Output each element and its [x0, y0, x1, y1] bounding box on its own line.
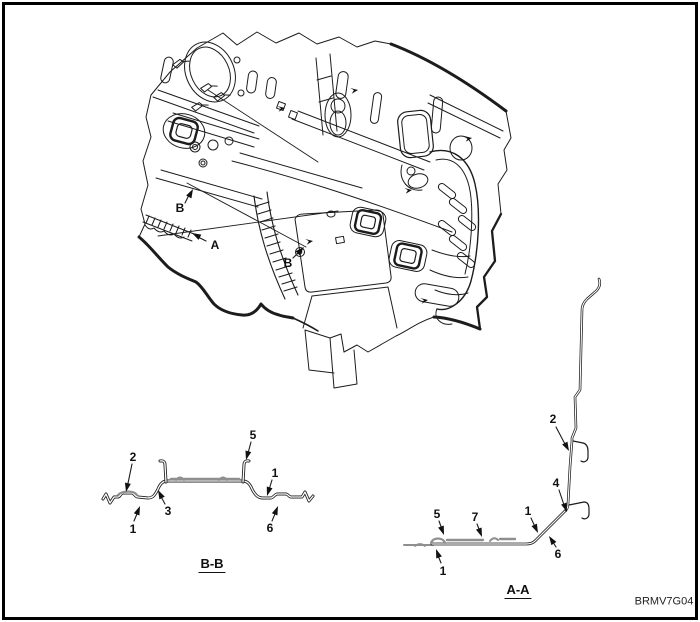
- section-line-bb: [187, 183, 306, 247]
- body-topright-edge: [391, 44, 506, 111]
- bb-callout: 5: [250, 429, 257, 441]
- body-right-edge-thick: [477, 214, 501, 329]
- slot: [265, 77, 277, 99]
- body-bottomright-edge: [434, 317, 480, 329]
- aa-callout: 7: [472, 511, 479, 523]
- peanut-hole: [325, 93, 351, 137]
- body-top-edge: [151, 32, 391, 95]
- aa-hook-upper: [573, 441, 588, 462]
- section-line-aa: [158, 211, 338, 236]
- aa-sealer: [431, 538, 515, 543]
- bb-callout: 1: [272, 467, 279, 479]
- aa-hook-lower: [569, 502, 589, 519]
- wheelhouse: [430, 150, 478, 324]
- pointer-line: [208, 90, 318, 162]
- floor-panel: [295, 210, 397, 328]
- bb-sealer: [118, 478, 239, 496]
- section-marker-b-1: B: [176, 202, 185, 214]
- line-art: [0, 0, 700, 622]
- section-marker-a: A: [211, 239, 220, 251]
- aa-callout: 4: [553, 477, 560, 489]
- main-view-art: [139, 32, 511, 388]
- weld-marks: [277, 86, 472, 304]
- slot: [431, 97, 443, 134]
- aa-callout: 6: [555, 548, 562, 560]
- hanging-panel-2: [305, 330, 334, 373]
- slot: [370, 92, 382, 124]
- bb-callout: 1: [130, 523, 137, 535]
- hatched-channel: [254, 192, 298, 299]
- bb-callout: 2: [130, 451, 137, 463]
- drawing-code: BRMV7G04: [635, 597, 694, 608]
- section-marker-b-2: B: [284, 257, 293, 269]
- slot: [335, 71, 349, 99]
- slot: [160, 56, 174, 83]
- aa-callout: 1: [525, 505, 532, 517]
- aa-callout: 1: [440, 565, 447, 577]
- aa-vertical: [566, 279, 600, 510]
- slot: [246, 70, 258, 93]
- figure-page: B A B 2 5 1 3 1 6 B-B 2 4 1 6 5 7 1 A-A …: [0, 0, 700, 622]
- small-combo-hole: [401, 165, 429, 190]
- bb-callout: 6: [267, 522, 274, 534]
- hatched-sill: [143, 215, 194, 241]
- aa-callout: 2: [550, 413, 557, 425]
- section-bb-title: B-B: [198, 557, 225, 573]
- aa-callout: 5: [434, 508, 441, 520]
- speaker-hole: [175, 34, 245, 110]
- section-marker-arrowheads: [186, 188, 306, 256]
- clip-tabs: [172, 56, 230, 112]
- bb-callout: 3: [165, 505, 172, 517]
- section-aa-title: A-A: [504, 583, 531, 599]
- body-right-edge: [477, 111, 511, 329]
- bb-arrowheads: [123, 451, 281, 516]
- hanging-panel-1: [330, 334, 357, 388]
- grommet: [388, 239, 429, 273]
